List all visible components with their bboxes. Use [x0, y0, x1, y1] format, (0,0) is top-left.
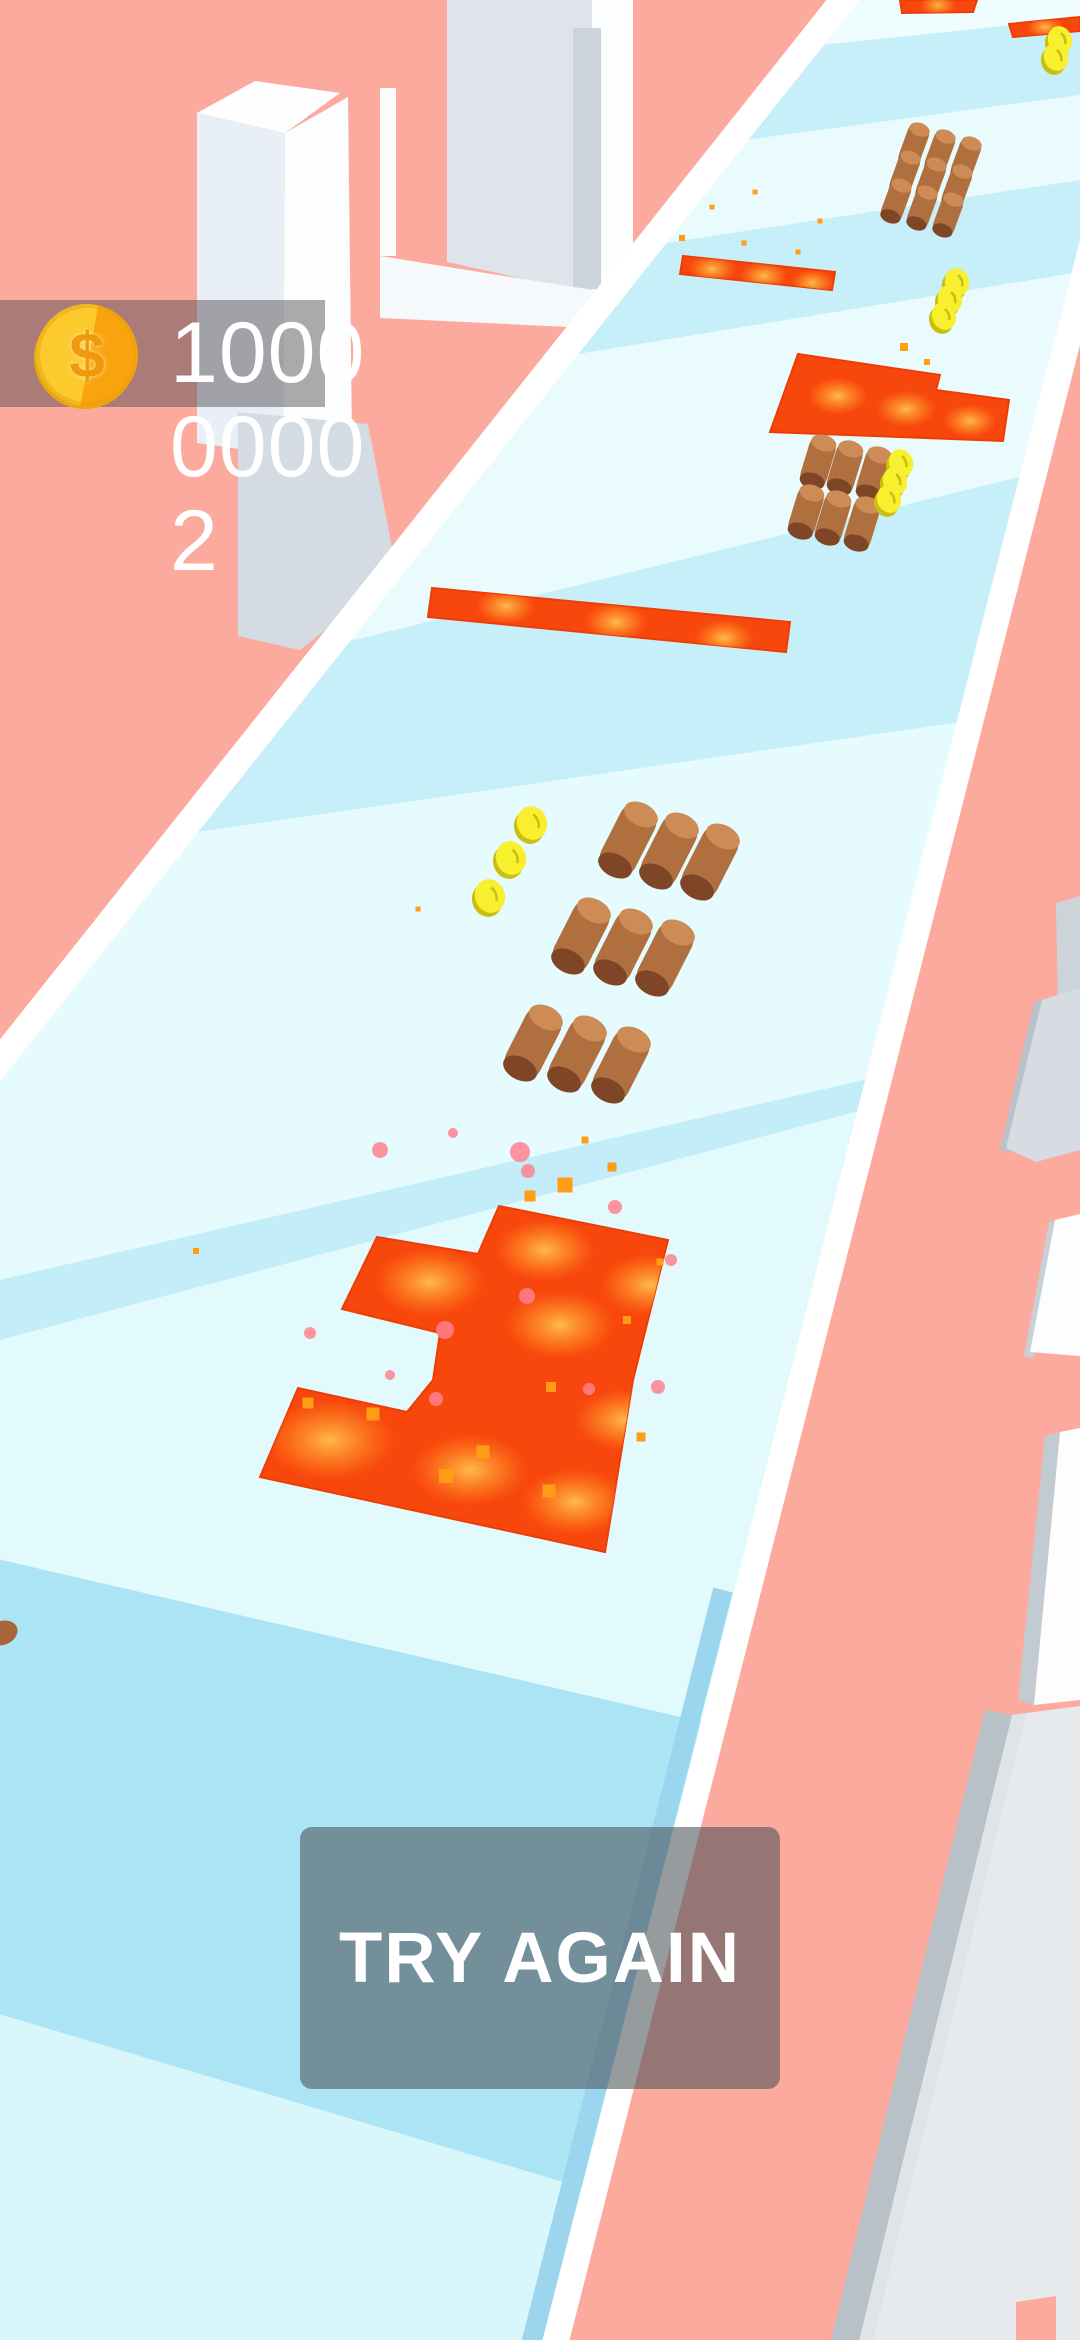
ember-particle — [439, 1469, 453, 1483]
ember-particle — [303, 1398, 314, 1409]
spark-particle — [651, 1380, 665, 1394]
building-center-gray-slab — [447, 0, 592, 294]
spark-particle — [583, 1383, 595, 1395]
ember-particle — [657, 1259, 664, 1266]
dollar-sign: $ — [69, 318, 105, 392]
coin-icon: $ — [36, 304, 138, 406]
spark-particle — [665, 1254, 677, 1266]
ember-particle — [543, 1485, 556, 1498]
ember-particle — [623, 1316, 631, 1324]
spark-particle — [385, 1370, 395, 1380]
ember-particle — [753, 190, 758, 195]
building-bottom-right-notch — [1016, 2296, 1056, 2340]
ember-particle — [416, 907, 421, 912]
ember-particle — [900, 343, 908, 351]
ember-particle — [637, 1433, 646, 1442]
spark-particle — [510, 1142, 530, 1162]
try-again-button[interactable]: TRY AGAIN — [300, 1827, 780, 2089]
ember-particle — [546, 1382, 556, 1392]
ember-particle — [367, 1408, 380, 1421]
ember-particle — [924, 359, 930, 365]
ember-particle — [742, 241, 747, 246]
ember-particle — [679, 235, 685, 241]
ember-particle — [525, 1191, 536, 1202]
building-left-white-column — [380, 88, 396, 256]
spark-particle — [448, 1128, 458, 1138]
ember-particle — [558, 1178, 573, 1193]
ember-particle — [818, 219, 823, 224]
spark-particle — [519, 1288, 535, 1304]
ember-particle — [608, 1163, 617, 1172]
ember-particle — [193, 1248, 199, 1254]
spark-particle — [304, 1327, 316, 1339]
spark-particle — [608, 1200, 622, 1214]
spark-particle — [521, 1164, 535, 1178]
ember-particle — [582, 1137, 589, 1144]
spark-particle — [372, 1142, 388, 1158]
ember-particle — [796, 250, 801, 255]
score-value: 100000002 — [170, 306, 370, 588]
ember-particle — [477, 1446, 490, 1459]
building-center-gray-sliver — [573, 28, 601, 290]
spark-particle — [429, 1392, 443, 1406]
spark-particle — [436, 1321, 454, 1339]
ember-particle — [710, 205, 715, 210]
